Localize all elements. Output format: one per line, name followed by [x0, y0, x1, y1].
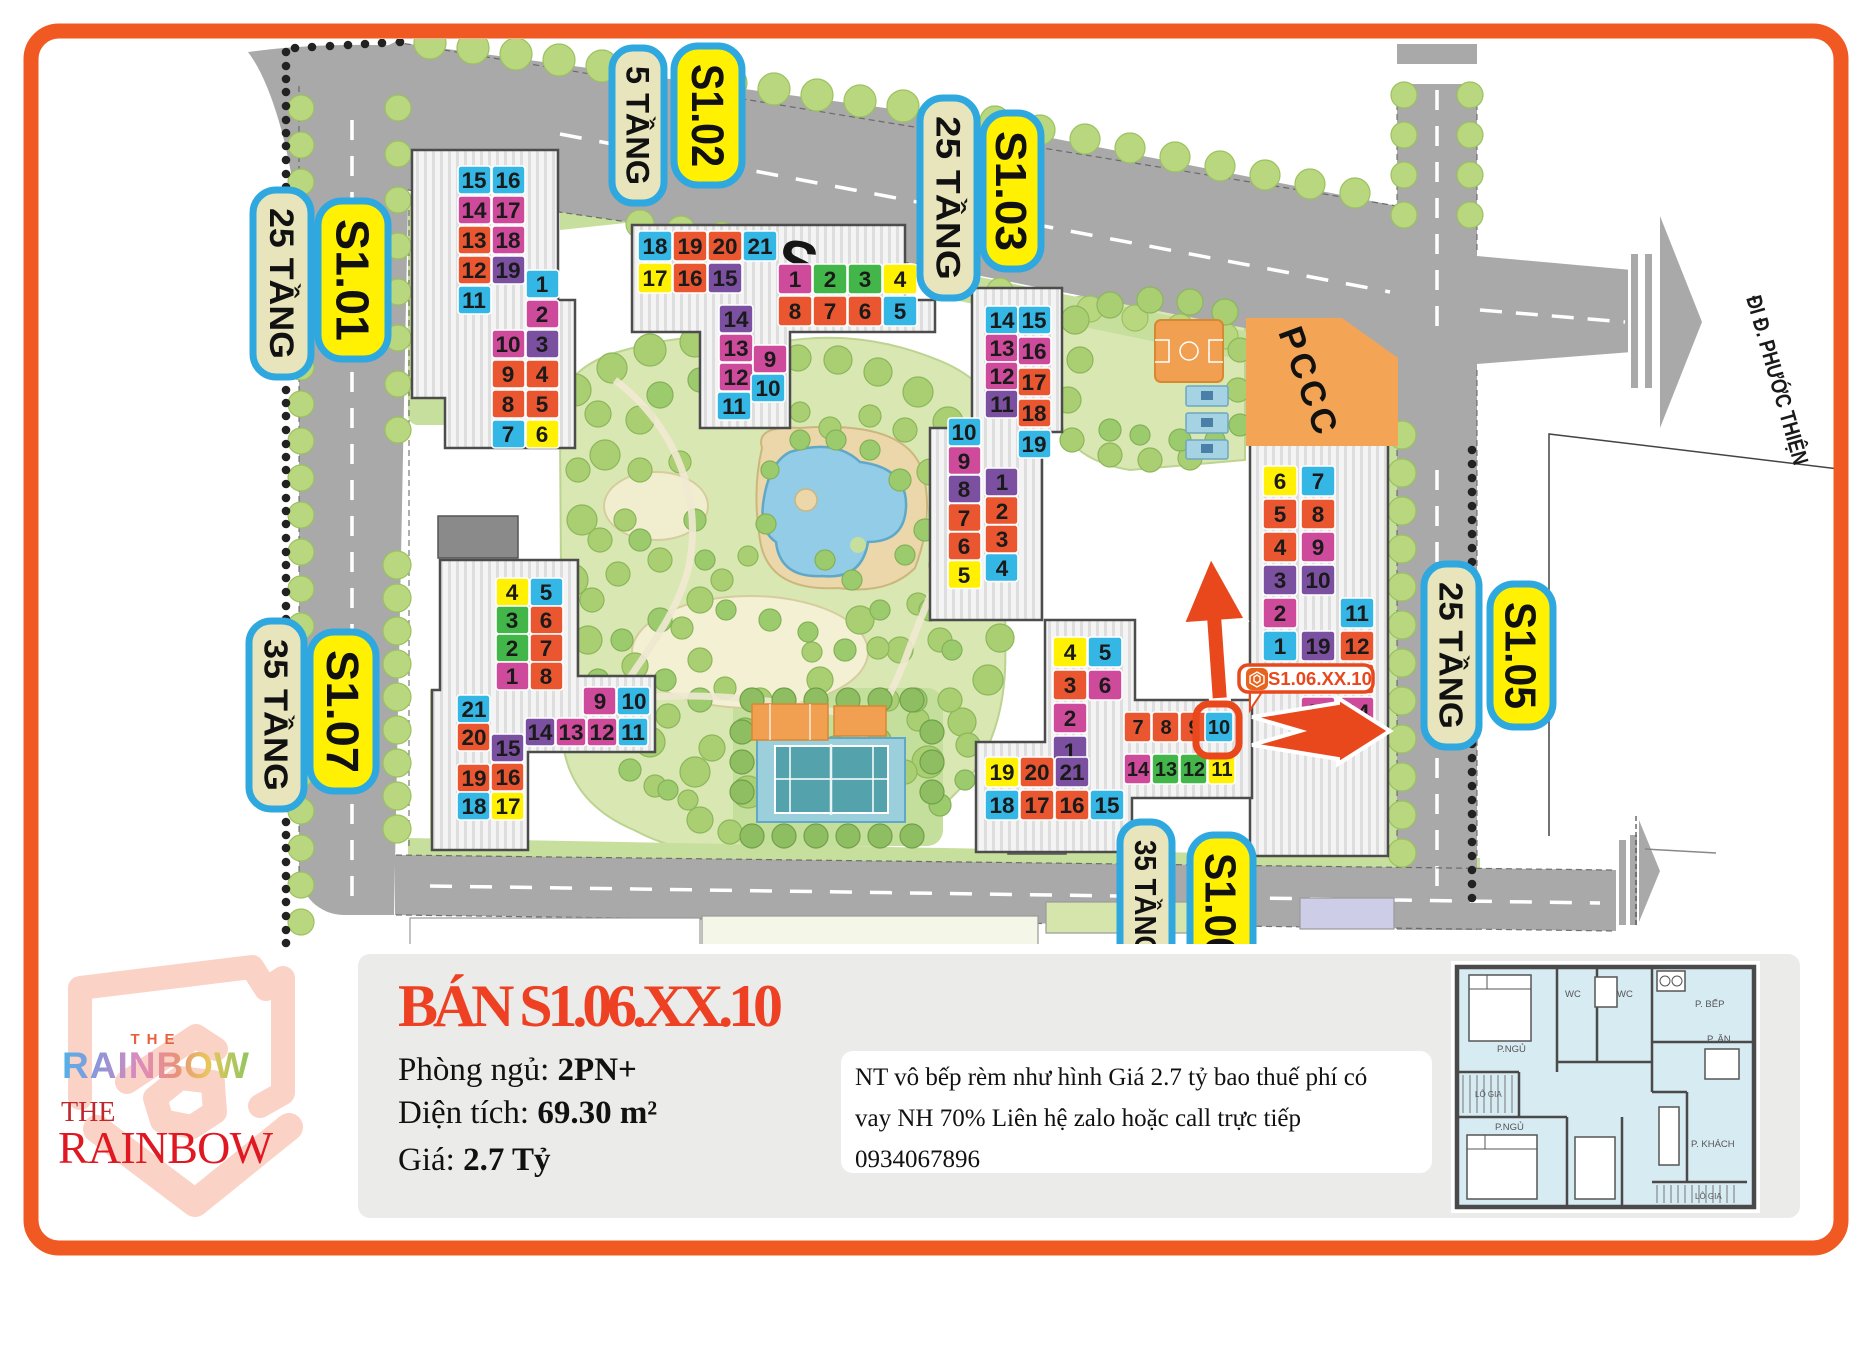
- svg-text:21: 21: [1059, 760, 1084, 785]
- svg-text:3: 3: [506, 608, 519, 633]
- svg-text:35 TẦNG: 35 TẦNG: [1128, 840, 1163, 957]
- svg-text:6: 6: [540, 608, 553, 633]
- svg-text:8: 8: [502, 392, 515, 417]
- svg-text:7: 7: [824, 299, 837, 324]
- svg-text:15: 15: [461, 168, 486, 193]
- svg-text:14: 14: [461, 198, 487, 223]
- svg-text:18: 18: [1021, 401, 1046, 426]
- svg-text:25 TẦNG: 25 TẦNG: [1433, 582, 1470, 729]
- svg-text:7: 7: [1132, 717, 1143, 739]
- svg-text:5: 5: [540, 580, 553, 605]
- svg-text:10: 10: [495, 332, 520, 357]
- svg-text:17: 17: [1021, 370, 1046, 395]
- svg-text:12: 12: [1183, 759, 1205, 781]
- svg-text:15: 15: [712, 266, 737, 291]
- svg-text:12: 12: [989, 364, 1014, 389]
- svg-text:1: 1: [536, 272, 549, 297]
- svg-text:17: 17: [495, 198, 520, 223]
- svg-text:10: 10: [1208, 717, 1230, 739]
- svg-text:3: 3: [1274, 568, 1287, 593]
- svg-text:18: 18: [495, 228, 520, 253]
- svg-text:17: 17: [495, 794, 520, 819]
- svg-text:14: 14: [989, 308, 1015, 333]
- svg-text:Phòng ngủ: 2PN+: Phòng ngủ: 2PN+: [398, 1052, 637, 1088]
- svg-text:19: 19: [461, 766, 486, 791]
- svg-text:1: 1: [996, 470, 1009, 495]
- svg-text:P. BẾP: P. BẾP: [1695, 999, 1724, 1010]
- svg-text:2: 2: [506, 636, 519, 661]
- svg-text:20: 20: [1024, 760, 1049, 785]
- svg-text:S1.06: S1.06: [1196, 853, 1245, 960]
- svg-text:17: 17: [1024, 793, 1049, 818]
- svg-text:S1.05: S1.05: [1496, 602, 1545, 709]
- svg-text:12: 12: [723, 365, 748, 390]
- svg-text:13: 13: [461, 228, 486, 253]
- svg-text:RAINBOW: RAINBOW: [62, 1045, 250, 1086]
- svg-text:S1.07: S1.07: [317, 650, 368, 773]
- svg-text:13: 13: [723, 336, 748, 361]
- svg-text:11: 11: [621, 720, 645, 745]
- svg-text:5: 5: [1099, 640, 1112, 665]
- svg-text:WC: WC: [1617, 989, 1633, 1000]
- svg-text:9: 9: [958, 449, 971, 474]
- svg-text:6: 6: [859, 299, 872, 324]
- svg-text:19: 19: [677, 234, 702, 259]
- svg-text:5 TẦNG: 5 TẦNG: [619, 66, 655, 185]
- svg-text:15: 15: [1094, 793, 1119, 818]
- svg-text:BÁN S1.06.XX.10: BÁN S1.06.XX.10: [398, 973, 783, 1039]
- svg-text:5: 5: [1274, 502, 1287, 527]
- svg-text:20: 20: [461, 725, 486, 750]
- svg-text:10: 10: [951, 420, 976, 445]
- svg-text:15: 15: [495, 736, 520, 761]
- svg-text:5: 5: [958, 563, 971, 588]
- svg-text:P.NGỦ: P.NGỦ: [1497, 1043, 1526, 1055]
- svg-text:14: 14: [527, 720, 553, 745]
- svg-text:13: 13: [989, 336, 1014, 361]
- svg-text:WC: WC: [1565, 989, 1581, 1000]
- svg-text:4: 4: [894, 267, 907, 292]
- svg-text:5: 5: [894, 299, 907, 324]
- svg-text:19: 19: [989, 760, 1014, 785]
- svg-text:2: 2: [996, 499, 1009, 524]
- svg-text:S1.06.XX.10: S1.06.XX.10: [1268, 668, 1372, 689]
- svg-text:18: 18: [461, 794, 486, 819]
- svg-text:13: 13: [1155, 759, 1177, 781]
- svg-text:6: 6: [1099, 673, 1112, 698]
- svg-text:15: 15: [1021, 308, 1046, 333]
- svg-text:2: 2: [536, 302, 549, 327]
- svg-text:0934067896: 0934067896: [855, 1146, 980, 1173]
- svg-text:11: 11: [990, 392, 1014, 417]
- svg-text:1: 1: [506, 664, 519, 689]
- svg-text:4: 4: [1064, 640, 1077, 665]
- svg-text:LÔ GIA: LÔ GIA: [1695, 1192, 1722, 1201]
- svg-text:9: 9: [764, 347, 777, 372]
- svg-text:11: 11: [1211, 759, 1232, 781]
- svg-text:18: 18: [642, 234, 667, 259]
- svg-text:LÔ GIA: LÔ GIA: [1475, 1090, 1502, 1099]
- svg-text:12: 12: [1344, 634, 1369, 659]
- svg-text:16: 16: [677, 266, 702, 291]
- svg-text:4: 4: [536, 362, 549, 387]
- svg-text:13: 13: [558, 720, 583, 745]
- svg-text:6: 6: [1274, 469, 1287, 494]
- svg-text:11: 11: [722, 394, 746, 419]
- svg-text:12: 12: [461, 258, 486, 283]
- svg-text:14: 14: [1127, 759, 1150, 781]
- svg-text:S1.02: S1.02: [682, 64, 733, 167]
- svg-text:10: 10: [621, 689, 646, 714]
- svg-text:18: 18: [989, 793, 1014, 818]
- svg-text:19: 19: [1021, 432, 1046, 457]
- svg-text:RAINBOW: RAINBOW: [58, 1122, 274, 1173]
- svg-text:16: 16: [495, 168, 520, 193]
- svg-text:3: 3: [996, 527, 1009, 552]
- svg-text:P. KHÁCH: P. KHÁCH: [1691, 1139, 1735, 1150]
- svg-text:P. ĂN: P. ĂN: [1707, 1034, 1731, 1045]
- svg-text:2: 2: [1274, 601, 1287, 626]
- svg-text:8: 8: [789, 299, 802, 324]
- svg-text:S1.03: S1.03: [986, 131, 1035, 251]
- svg-text:3: 3: [859, 267, 872, 292]
- svg-text:21: 21: [747, 234, 772, 259]
- svg-text:Diện tích: 69.30 m²: Diện tích: 69.30 m²: [398, 1095, 657, 1131]
- svg-text:P.NGỦ: P.NGỦ: [1495, 1121, 1524, 1133]
- svg-text:2: 2: [824, 267, 837, 292]
- svg-text:1: 1: [1274, 634, 1287, 659]
- svg-text:9: 9: [594, 689, 607, 714]
- svg-text:21: 21: [461, 697, 486, 722]
- svg-text:7: 7: [1312, 469, 1325, 494]
- svg-text:4: 4: [996, 556, 1009, 581]
- svg-text:7: 7: [540, 636, 553, 661]
- svg-text:Giá: 2.7 Tỷ: Giá: 2.7 Tỷ: [398, 1142, 551, 1178]
- svg-text:25 TẦNG: 25 TẦNG: [928, 116, 966, 280]
- svg-text:19: 19: [1305, 634, 1330, 659]
- svg-text:20: 20: [712, 234, 737, 259]
- svg-text:11: 11: [1345, 601, 1369, 626]
- svg-text:NT vô bếp rèm như hình Giá 2.7: NT vô bếp rèm như hình Giá 2.7 tỷ bao th…: [855, 1064, 1367, 1091]
- svg-text:12: 12: [589, 720, 614, 745]
- svg-text:2: 2: [1064, 706, 1077, 731]
- svg-text:9: 9: [502, 362, 515, 387]
- svg-text:7: 7: [958, 506, 971, 531]
- svg-text:9: 9: [1312, 535, 1325, 560]
- svg-text:10: 10: [755, 376, 780, 401]
- svg-text:16: 16: [1021, 339, 1046, 364]
- svg-text:8: 8: [1312, 502, 1325, 527]
- svg-text:16: 16: [495, 765, 520, 790]
- svg-text:6: 6: [958, 534, 971, 559]
- svg-text:S1.01: S1.01: [326, 219, 378, 341]
- svg-text:19: 19: [495, 258, 520, 283]
- svg-text:8: 8: [540, 664, 553, 689]
- svg-text:10: 10: [1305, 568, 1330, 593]
- svg-text:14: 14: [723, 307, 749, 332]
- svg-text:1: 1: [789, 267, 802, 292]
- svg-text:3: 3: [536, 332, 549, 357]
- svg-text:11: 11: [462, 288, 486, 313]
- svg-text:4: 4: [1274, 535, 1287, 560]
- svg-text:8: 8: [958, 477, 971, 502]
- svg-text:8: 8: [1160, 717, 1171, 739]
- svg-text:7: 7: [502, 422, 515, 447]
- svg-text:vay NH 70% Liên hệ zalo hoặc c: vay NH 70% Liên hệ zalo hoặc call trực t…: [855, 1105, 1301, 1132]
- svg-text:3: 3: [1064, 673, 1077, 698]
- svg-text:5: 5: [536, 392, 549, 417]
- svg-text:17: 17: [642, 266, 667, 291]
- svg-text:16: 16: [1059, 793, 1084, 818]
- svg-text:35 TẦNG: 35 TẦNG: [258, 639, 295, 791]
- svg-text:6: 6: [536, 422, 549, 447]
- svg-text:4: 4: [506, 580, 519, 605]
- svg-text:25 TẦNG: 25 TẦNG: [262, 208, 300, 359]
